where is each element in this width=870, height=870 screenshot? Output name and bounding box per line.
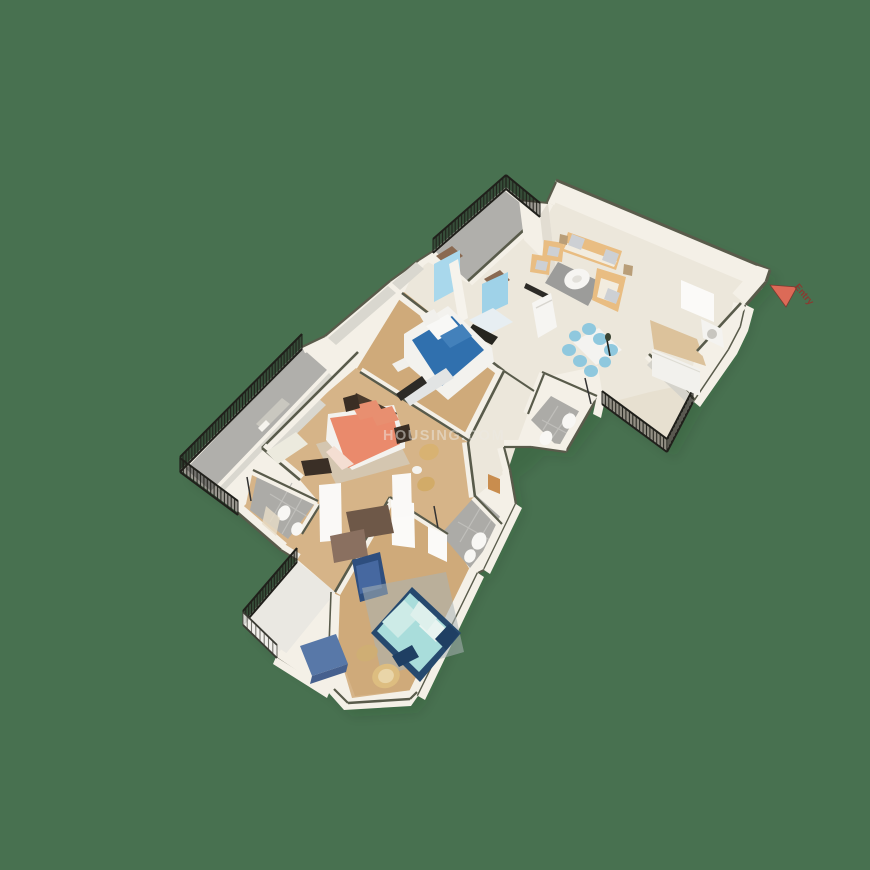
svg-text:HOUSING.COM: HOUSING.COM	[383, 428, 505, 444]
